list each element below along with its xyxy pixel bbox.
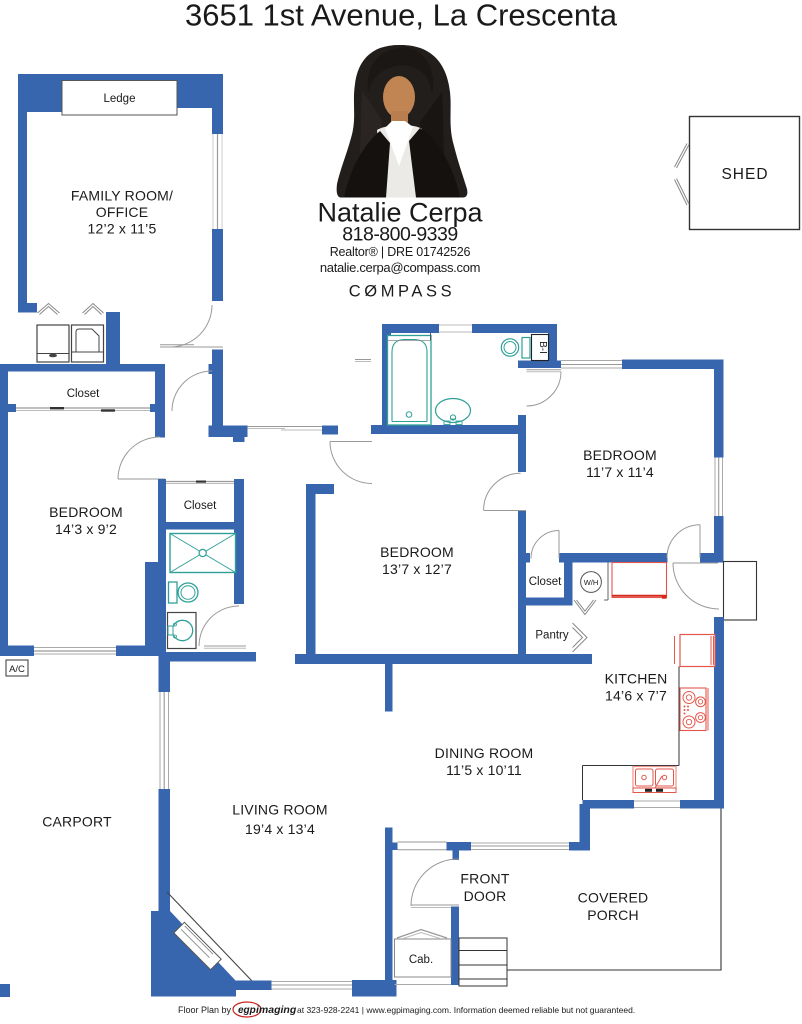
- svg-text:natalie.cerpa@compass.com: natalie.cerpa@compass.com: [320, 260, 480, 275]
- svg-text:Closet: Closet: [184, 500, 217, 512]
- svg-text:B-I: B-I: [537, 341, 548, 354]
- svg-text:at 323-928-2241 | www.egpimagi: at 323-928-2241 | www.egpimaging.com. In…: [297, 1005, 635, 1015]
- svg-text:14’3 x 9’2: 14’3 x 9’2: [55, 521, 117, 537]
- svg-text:W/H: W/H: [584, 578, 599, 587]
- svg-text:A/C: A/C: [9, 664, 25, 675]
- svg-text:BEDROOM: BEDROOM: [49, 504, 123, 520]
- svg-text:11’5 x 10’11: 11’5 x 10’11: [446, 762, 522, 778]
- svg-text:FAMILY ROOM/: FAMILY ROOM/: [71, 188, 173, 204]
- svg-text:DOOR: DOOR: [464, 888, 507, 904]
- svg-text:OFFICE: OFFICE: [96, 204, 149, 220]
- svg-text:818-800-9339: 818-800-9339: [342, 224, 457, 246]
- svg-text:imaging: imaging: [256, 1004, 297, 1016]
- svg-text:egp: egp: [238, 1005, 256, 1016]
- svg-text:BEDROOM: BEDROOM: [583, 447, 657, 463]
- svg-text:SHED: SHED: [721, 166, 768, 183]
- svg-text:19’4 x 13’4: 19’4 x 13’4: [245, 821, 315, 837]
- svg-text:KITCHEN: KITCHEN: [605, 671, 668, 687]
- svg-text:FRONT: FRONT: [460, 871, 509, 887]
- svg-text:BEDROOM: BEDROOM: [380, 544, 454, 560]
- svg-text:Closet: Closet: [67, 388, 100, 400]
- svg-text:11’7 x 11’4: 11’7 x 11’4: [586, 464, 654, 480]
- svg-text:12’2 x 11’5: 12’2 x 11’5: [88, 221, 157, 237]
- svg-text:LIVING ROOM: LIVING ROOM: [232, 802, 328, 818]
- svg-text:Cab.: Cab.: [409, 954, 433, 966]
- svg-text:COVERED: COVERED: [578, 890, 649, 906]
- svg-text:Realtor® | DRE 01742526: Realtor® | DRE 01742526: [330, 245, 471, 259]
- svg-text:Floor Plan by: Floor Plan by: [178, 1005, 232, 1015]
- svg-text:Closet: Closet: [529, 576, 562, 588]
- svg-text:COMPASS: COMPASS: [349, 283, 456, 301]
- svg-text:Pantry: Pantry: [535, 630, 568, 642]
- svg-text:13’7 x 12’7: 13’7 x 12’7: [382, 561, 452, 577]
- svg-text:14’6 x 7’7: 14’6 x 7’7: [605, 688, 667, 704]
- svg-text:CARPORT: CARPORT: [42, 814, 112, 830]
- svg-text:3651 1st Avenue, La Crescenta: 3651 1st Avenue, La Crescenta: [185, 0, 618, 33]
- svg-text:Ledge: Ledge: [104, 93, 136, 105]
- svg-text:DINING ROOM: DINING ROOM: [435, 745, 534, 761]
- svg-text:PORCH: PORCH: [587, 907, 639, 923]
